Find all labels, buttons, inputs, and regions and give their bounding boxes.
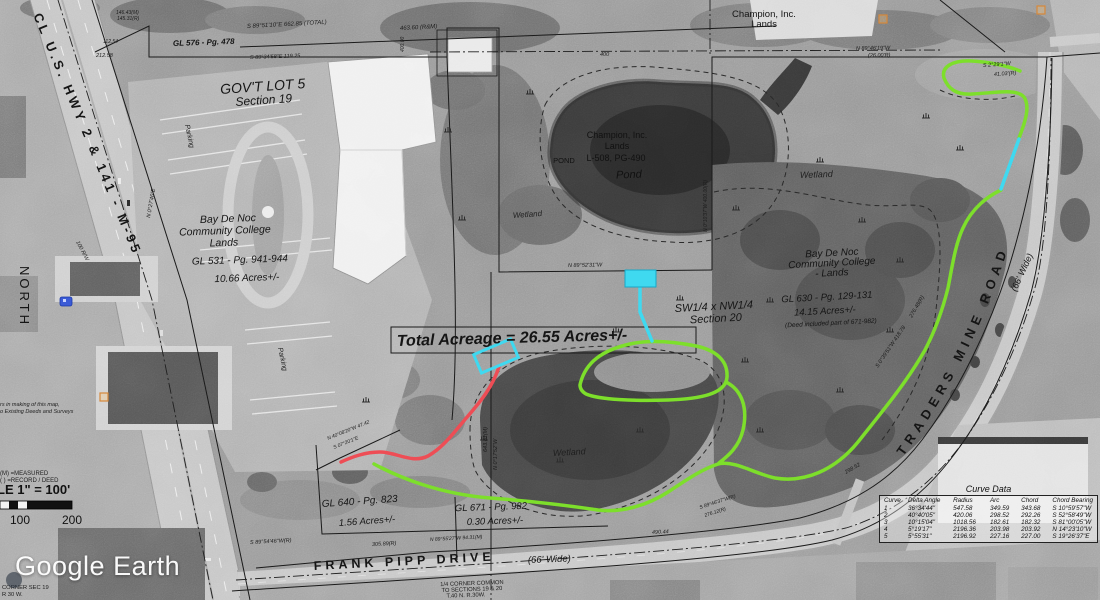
survey-annotation: 490.44 xyxy=(652,529,669,536)
curve-cell: 5°55'31" xyxy=(907,533,952,540)
curve-cell: S 10°59'57"W xyxy=(1051,505,1094,512)
north-label: NORTH xyxy=(17,266,32,327)
survey-annotation: 112.54 xyxy=(103,39,118,45)
curve-cell: 203.92 xyxy=(1020,526,1051,533)
curve-row: 240°40'05"420.06298.52292.26S 52°58'49"W xyxy=(883,512,1094,519)
scale-tick-200: 200 xyxy=(62,513,82,527)
curve-cell: 1 xyxy=(883,505,907,512)
survey-annotation: 643.81(M) xyxy=(483,427,489,452)
curve-row: 310°15'04"1018.56182.61182.32S 81°00'05"… xyxy=(883,519,1094,526)
curve-cell: 227.16 xyxy=(989,533,1020,540)
curve-cell: 2196.92 xyxy=(952,533,989,540)
curve-cell: S 19°26'37"E xyxy=(1051,533,1094,540)
curve-cell: 4 xyxy=(883,526,907,533)
svg-text:R 30 W.: R 30 W. xyxy=(2,592,23,598)
svg-text:(M) =MEASURED: (M) =MEASURED xyxy=(0,471,49,477)
curve-col-header: Arc xyxy=(989,497,1020,505)
survey-annotation: (26.00'R) xyxy=(868,53,891,59)
placemark-icon[interactable] xyxy=(1037,6,1045,14)
curve-row: 55°55'31"2196.92227.16227.00S 19°26'37"E xyxy=(883,533,1094,540)
placemark-icon[interactable] xyxy=(879,15,887,23)
curve-cell: 36°34'44" xyxy=(907,505,952,512)
curve-cell: 2196.36 xyxy=(952,526,989,533)
scale-text: LE 1" = 100' xyxy=(0,482,70,497)
survey-annotation: 400.00 xyxy=(400,36,406,52)
survey-annotation: 400 xyxy=(600,52,610,58)
curve-cell: 10°15'04" xyxy=(907,519,952,526)
curve-cell: 5°19'17" xyxy=(907,526,952,533)
curve-cell: 40°40'05" xyxy=(907,512,952,519)
frank-wide-label: (66' Wide) xyxy=(528,554,571,566)
survey-annotation: N 89°52'31"W xyxy=(568,262,603,269)
map-canvas[interactable]: CL U.S. HWY 2 & 141 - M-95 TRADERS MINE … xyxy=(0,0,1100,600)
curve-cell: N 14°23'10"W xyxy=(1051,526,1094,533)
survey-annotation: 145.31(R) xyxy=(117,16,140,22)
curve-cell: S 81°00'05"W xyxy=(1051,519,1094,526)
curve-cell: 3 xyxy=(883,519,907,526)
curve-cell: 298.52 xyxy=(989,512,1020,519)
survey-annotation: N 0°10'37"W 400.00(R) xyxy=(703,180,709,232)
svg-text:Lands: Lands xyxy=(751,19,777,30)
svg-text:10.66 Acres+/-: 10.66 Acres+/- xyxy=(214,272,280,285)
curve-cell: 547.58 xyxy=(952,505,989,512)
curve-header-row: CurveDelta AngleRadiusArcChordChord Bear… xyxy=(883,497,1094,505)
wetland-ne-label: Wetland xyxy=(800,169,834,180)
svg-text:L-508, PG-490: L-508, PG-490 xyxy=(586,153,645,163)
curve-cell: 292.26 xyxy=(1020,512,1051,519)
curve-cell: 182.61 xyxy=(989,519,1020,526)
curve-cell: 203.98 xyxy=(989,526,1020,533)
survey-annotation: 212.58 xyxy=(95,53,114,59)
poi-icon[interactable] xyxy=(60,297,72,306)
trailhead-marker-filled[interactable] xyxy=(625,270,656,287)
svg-text:o Existing Deeds and Surveys: o Existing Deeds and Surveys xyxy=(0,409,74,415)
scale-tick-100: 100 xyxy=(10,513,30,527)
curve-col-header: Chord xyxy=(1020,497,1051,505)
svg-text:rs in making of this map,: rs in making of this map, xyxy=(0,402,60,408)
curve-table-title: Curve Data xyxy=(879,484,1098,494)
curve-col-header: Delta Angle xyxy=(907,497,952,505)
curve-col-header: Radius xyxy=(952,497,989,505)
curve-cell: 420.06 xyxy=(952,512,989,519)
pond-small-label: POND xyxy=(553,156,575,165)
curve-cell: S 52°58'49"W xyxy=(1051,512,1094,519)
wetland-s-label: Wetland xyxy=(553,446,587,458)
gl671-acres-label: 0.30 Acres+/- xyxy=(467,515,524,528)
curve-row: 45°19'17"2196.36203.98203.92N 14°23'10"W xyxy=(883,526,1094,533)
curve-cell: 349.59 xyxy=(989,505,1020,512)
curve-col-header: Curve xyxy=(883,497,907,505)
survey-annotation: N 0°17'52"W xyxy=(493,438,499,470)
curve-cell: 343.68 xyxy=(1020,505,1051,512)
placemark-icon[interactable] xyxy=(100,393,108,401)
svg-text:Champion, Inc.: Champion, Inc. xyxy=(587,130,648,140)
curve-col-header: Chord Bearing xyxy=(1051,497,1094,505)
svg-text:- Lands: - Lands xyxy=(815,267,849,280)
survey-annotation: N 89°46'19"W xyxy=(856,45,891,52)
svg-text:Lands: Lands xyxy=(605,141,630,151)
curve-data-table: Curve Data CurveDelta AngleRadiusArcChor… xyxy=(879,484,1098,543)
curve-cell: 182.32 xyxy=(1020,519,1051,526)
curve-cell: 227.00 xyxy=(1020,533,1051,540)
curve-cell: 5 xyxy=(883,533,907,540)
curve-cell: 1018.56 xyxy=(952,519,989,526)
pond-label: Pond xyxy=(616,169,643,182)
google-earth-watermark: Google Earth xyxy=(15,551,180,582)
svg-text:Lands: Lands xyxy=(209,236,239,249)
curve-row: 136°34'44"547.58349.59343.68S 10°59'57"W xyxy=(883,505,1094,512)
curve-cell: 2 xyxy=(883,512,907,519)
